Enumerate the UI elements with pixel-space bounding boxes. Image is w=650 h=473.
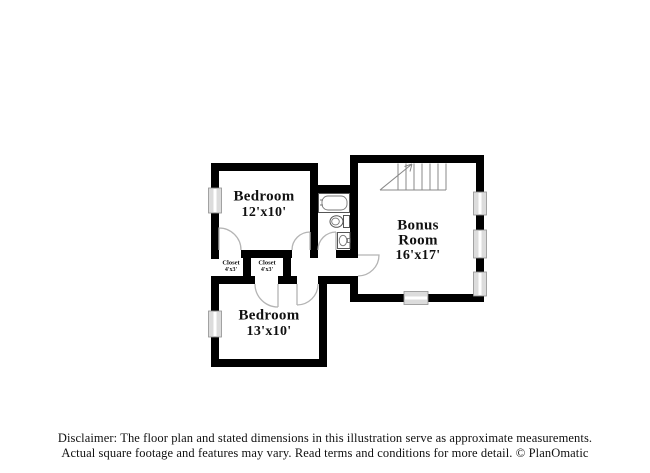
closet-left-name: Closet [222,260,239,267]
stair-direction-line [380,164,412,190]
bonus-room-dims: 16'x17' [396,248,441,264]
closet-right-name: Closet [258,260,275,267]
floor-plan-page: Bedroom 12'x10' Bonus Room 16'x17' Bedro… [0,0,650,473]
door-bonus-room [358,255,379,276]
top-bedroom-dims: 12'x10' [242,205,287,221]
closet-left-dims: 4'x3' [225,267,237,273]
wall-bottom-bedroom-bottom [211,359,327,367]
door-top-bedroom [292,232,310,250]
wall-bottom-bedroom-top-segment-2 [278,276,297,284]
wall-bedroom-bathroom-shared [310,163,318,258]
toilet-tank [344,216,350,228]
door-closet-left [219,228,241,250]
stairs-icon [380,164,446,191]
door-closet-right [255,284,278,307]
closet-right-dims: 4'x3' [261,267,273,273]
bottom-bedroom-dims: 13'x10' [247,324,292,340]
disclaimer-line2: Actual square footage and features may v… [0,446,650,461]
disclaimer-line1: Disclaimer: The floor plan and stated di… [0,431,650,446]
wall-top-bedroom-top [211,163,318,171]
bathroom-fixtures [319,194,351,249]
wall-bottom-bedroom-right [319,276,327,367]
door-bottom-bedroom [297,284,318,305]
stair-treads [380,164,446,191]
wall-bonus-left-upper [350,155,358,255]
wall-bonus-top [350,155,484,163]
floor-plan-drawing [0,0,650,473]
top-bedroom-name: Bedroom [234,189,295,206]
bonus-room-name-line2: Room [398,233,438,250]
bottom-bedroom-name: Bedroom [239,308,300,325]
door-bathroom [318,232,336,250]
